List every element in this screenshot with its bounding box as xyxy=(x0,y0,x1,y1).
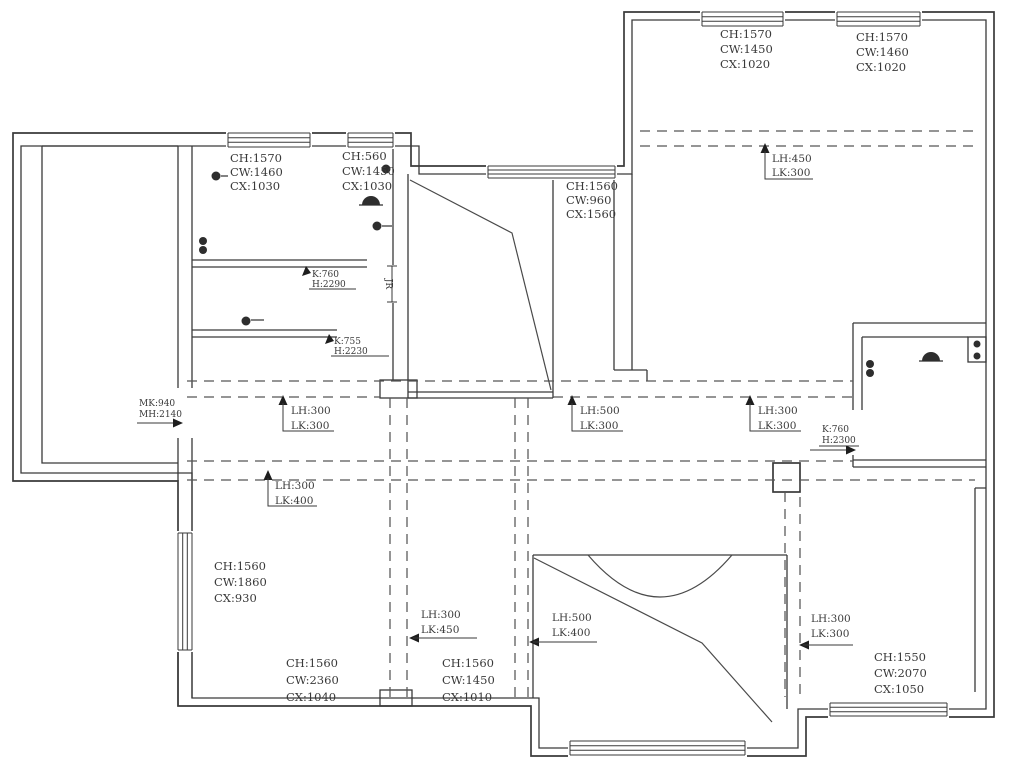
label-line: LK:300 xyxy=(580,420,618,432)
label-line: LK:300 xyxy=(811,628,849,640)
window-bottom-right xyxy=(828,701,949,718)
outer-wall xyxy=(13,12,994,756)
label-line: K:760 xyxy=(312,270,339,280)
label-line: CX:1010 xyxy=(442,690,492,704)
socket-icon xyxy=(373,222,382,231)
label-line: LH:450 xyxy=(772,153,812,165)
stair-diagonal xyxy=(410,180,551,390)
label-stair-room: CH:1560 CW:960 CX:1560 xyxy=(566,179,618,221)
label-line: LH:300 xyxy=(291,405,331,417)
label-line: CX:1020 xyxy=(720,57,770,71)
diagonal-lines xyxy=(410,180,772,722)
label-line: LH:300 xyxy=(758,405,798,417)
label-br-room: CH:1550 CW:2070 CX:1050 xyxy=(874,650,927,696)
label-line: LH:300 xyxy=(275,480,315,492)
label-line: CX:1030 xyxy=(342,179,392,193)
callout-hall-beam-right: LH:300 LK:300 xyxy=(746,395,802,432)
label-tr-room2: CH:1570 CW:1460 CX:1020 xyxy=(856,30,909,74)
label-line: K:755 xyxy=(334,337,361,347)
door-tag-jr: JR xyxy=(383,266,397,302)
callout-beam-bath: LH:500 LK:400 xyxy=(529,612,597,647)
label-line: LK:300 xyxy=(291,420,329,432)
walls xyxy=(13,12,994,756)
label-line: LK:450 xyxy=(421,624,459,636)
up-arrow-icon xyxy=(325,334,334,344)
tl-wall-b xyxy=(192,330,337,337)
label-line: CX:1030 xyxy=(230,179,280,193)
label-line: CH:1560 xyxy=(214,559,266,573)
label-line: CW:1450 xyxy=(720,42,773,56)
label-tr-room1: CH:1570 CW:1450 CX:1020 xyxy=(720,27,773,71)
floor-plan-svg: CH:1570 CW:1460 CX:1030 CH:560 CW:1450 C… xyxy=(0,0,1011,767)
label-line: CW:1860 xyxy=(214,575,267,589)
label-line: CW:960 xyxy=(566,193,611,207)
callout-kitchen-door: K:760 H:2300 xyxy=(810,425,859,455)
right-arrow-icon xyxy=(846,446,856,455)
label-line: CH:1550 xyxy=(874,650,926,664)
label-line: CX:1020 xyxy=(856,60,906,74)
callout-beam-br: LH:300 LK:300 xyxy=(799,613,853,650)
column-pillar xyxy=(773,463,800,492)
label-line: CH:1570 xyxy=(856,30,908,44)
label-line: CH:1570 xyxy=(720,27,772,41)
label-line: LK:400 xyxy=(552,627,590,639)
annotations: CH:1570 CW:1460 CX:1030 CH:560 CW:1450 C… xyxy=(137,27,927,704)
label-line: MK:940 xyxy=(139,399,175,409)
br-room-walls xyxy=(975,488,986,692)
label-line: LH:300 xyxy=(421,609,461,621)
label-line: H:2290 xyxy=(312,280,346,290)
label-line: LH:300 xyxy=(811,613,851,625)
callout-hall-beam-mid: LH:500 LK:300 xyxy=(568,395,624,432)
socket-icon xyxy=(242,317,251,326)
bath-arc xyxy=(588,555,732,597)
label-line: CX:1040 xyxy=(286,690,336,704)
label-line: CW:1450 xyxy=(342,164,395,178)
tl-wall-a xyxy=(192,260,367,267)
socket-icon xyxy=(866,360,874,368)
hallway-walls xyxy=(614,174,647,381)
socket-icon xyxy=(199,237,207,245)
label-line: LK:300 xyxy=(758,420,796,432)
floor-plan-canvas: CH:1570 CW:1460 CX:1030 CH:560 CW:1450 C… xyxy=(0,0,1011,767)
bath-diagonal xyxy=(534,558,772,722)
label-line: CX:930 xyxy=(214,591,257,605)
window-left-vertical xyxy=(176,531,194,652)
callout-door-k2: K:755 H:2230 xyxy=(325,334,389,357)
label-line: CH:560 xyxy=(342,149,387,163)
window-mid-top xyxy=(486,164,617,180)
window-tr-2 xyxy=(835,10,922,28)
window-bottom-bay xyxy=(568,739,747,757)
label-line: H:2230 xyxy=(334,347,368,357)
label-line: CW:2070 xyxy=(874,666,927,680)
tl-block-walls xyxy=(393,146,408,398)
label-line: CH:1570 xyxy=(230,151,282,165)
label-bl-room-bottom: CH:1560 CW:2360 CX:1040 xyxy=(286,656,339,704)
label-line: LK:400 xyxy=(275,495,313,507)
label-line: LH:500 xyxy=(580,405,620,417)
label-line: CH:1560 xyxy=(286,656,338,670)
label-line: CW:2360 xyxy=(286,673,339,687)
callout-hall-beam-lower: LH:300 LK:400 xyxy=(264,470,318,507)
label-bl-room: CH:1560 CW:1860 CX:930 xyxy=(214,559,267,605)
window-tr-1 xyxy=(700,10,785,28)
label-line: LK:300 xyxy=(772,167,810,179)
window-tl-1 xyxy=(226,131,312,149)
label-line: CH:1560 xyxy=(566,179,618,193)
label-line: CH:1560 xyxy=(442,656,494,670)
callout-hall-beam-left: LH:300 LK:300 xyxy=(279,395,335,432)
window-tl-2 xyxy=(346,131,395,149)
callout-door-k1: K:760 H:2290 xyxy=(302,266,356,290)
door-tag-text: JR xyxy=(383,278,393,290)
label-line: MH:2140 xyxy=(139,410,182,420)
label-tl-room: CH:1570 CW:1460 CX:1030 xyxy=(230,151,283,193)
lamp-icon xyxy=(362,196,380,205)
callout-beam-v-left: LH:300 LK:450 xyxy=(409,609,477,643)
kitchen-walls xyxy=(853,323,986,467)
label-line: H:2300 xyxy=(822,436,856,446)
label-line: CW:1460 xyxy=(856,45,909,59)
label-line: CW:1450 xyxy=(442,673,495,687)
stair-block-walls xyxy=(408,174,553,398)
label-line: CX:1050 xyxy=(874,682,924,696)
socket-icon xyxy=(974,353,981,360)
socket-icon xyxy=(199,246,207,254)
socket-icon xyxy=(212,172,221,181)
label-line: LH:500 xyxy=(552,612,592,624)
label-bm-room-bottom: CH:1560 CW:1450 CX:1010 xyxy=(442,656,495,704)
lamp-icon xyxy=(922,352,940,361)
callout-tr-beam: LH:450 LK:300 xyxy=(761,143,814,179)
wall-junction-block xyxy=(380,380,417,398)
label-line: K:760 xyxy=(822,425,849,435)
label-line: CX:1560 xyxy=(566,207,616,221)
label-tl-room2: CH:560 CW:1450 CX:1030 xyxy=(342,149,395,193)
socket-icon xyxy=(866,369,874,377)
label-line: CW:1460 xyxy=(230,165,283,179)
socket-icon xyxy=(974,341,981,348)
